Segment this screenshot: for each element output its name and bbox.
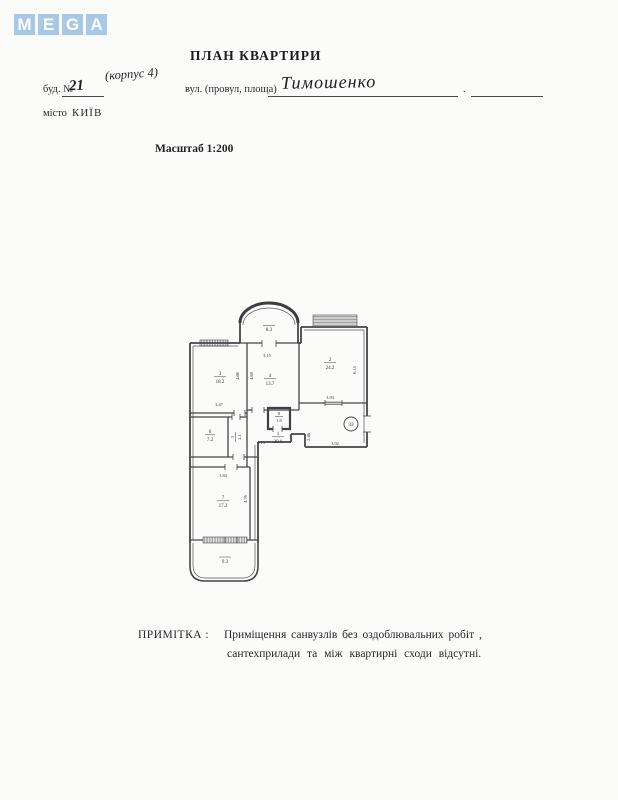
room-8-number: 8: [278, 411, 280, 416]
floor-plan: 32 3 18.2 4 13.7 2 24.2 1 20.6 6 7.2 7 1…: [170, 290, 410, 620]
document-title: ПЛАН КВАРТИРИ: [190, 48, 322, 64]
street-label: вул. (провул, площа): [185, 84, 277, 95]
room-5-label-group: 5 2.1: [230, 432, 242, 442]
city-label: місто: [43, 108, 67, 119]
dim-entry-bottom: 3.92: [331, 441, 339, 446]
balcony-slab-room2: [313, 315, 357, 327]
room-8-area: 1.8: [276, 418, 281, 423]
logo-letter-g: G: [62, 14, 83, 35]
room-3-area: 18.2: [216, 380, 225, 385]
logo-letter-a: A: [86, 14, 107, 35]
signature-line-street: [268, 96, 458, 97]
room-7-number: 7: [222, 496, 225, 501]
dim-hall-depth: 2.46: [306, 432, 311, 440]
dim-hall-left: 4.13: [257, 440, 265, 445]
dim-room3-bottom: 3.47: [215, 402, 223, 407]
dim-room4-side: 4.68: [249, 372, 254, 380]
room-7-area: 17.2: [219, 504, 228, 509]
block-note-value: (корпус 4): [105, 65, 159, 84]
balcony-bottom-area: 9.3: [222, 560, 229, 565]
dim-room2-bottom: 3.93: [326, 395, 334, 400]
room-4-number: 4: [269, 374, 272, 379]
logo-letter-e: E: [38, 14, 59, 35]
dim-room2-side: 6.15: [352, 366, 357, 374]
signature-line-building: [62, 96, 104, 97]
room-2-area: 24.2: [326, 366, 335, 371]
room-5-area: 2.1: [237, 434, 242, 439]
note-label: ПРИМІТКА :: [138, 629, 209, 641]
note-line-1: Приміщення санвузлів без оздоблювальних …: [224, 629, 482, 641]
scanned-document-page: M E G A ПЛАН КВАРТИРИ буд. № 21 (корпус …: [0, 0, 618, 800]
signature-line-extra: [471, 96, 543, 97]
balcony-top-area: 8.3: [266, 328, 273, 333]
note-line-2: сантехприлади та між квартирні сходи від…: [227, 648, 481, 660]
bay-window-arc: [240, 303, 298, 323]
city-value: КИЇВ: [72, 107, 102, 119]
scale-label: Масштаб 1:200: [155, 143, 233, 155]
logo-letter-m: M: [14, 14, 35, 35]
room-2-number: 2: [329, 358, 332, 363]
dim-room7-top: 3.84: [219, 473, 227, 478]
room-6-area: 7.2: [207, 438, 214, 443]
mega-logo: M E G A: [14, 14, 107, 35]
street-value: Тимошенко: [281, 71, 377, 94]
window-room3: [200, 340, 228, 346]
dim-room7-side: 4.76: [243, 494, 248, 502]
room-3-number: 3: [219, 372, 222, 377]
room-4-area: 13.7: [266, 382, 275, 387]
dim-room4-top: 3.15: [263, 353, 271, 358]
bay-window-arc-inner: [243, 308, 295, 325]
room-1-area: 20.6: [274, 440, 283, 445]
room-6-number: 6: [209, 430, 212, 435]
dim-room3-side: 4.66: [235, 371, 240, 379]
apartment-number: 32: [348, 422, 354, 428]
room-1-number: 1: [277, 432, 280, 437]
room-5-number: 5: [230, 436, 235, 438]
building-number-value: 21: [69, 78, 85, 96]
separator-dot: .: [463, 84, 466, 95]
